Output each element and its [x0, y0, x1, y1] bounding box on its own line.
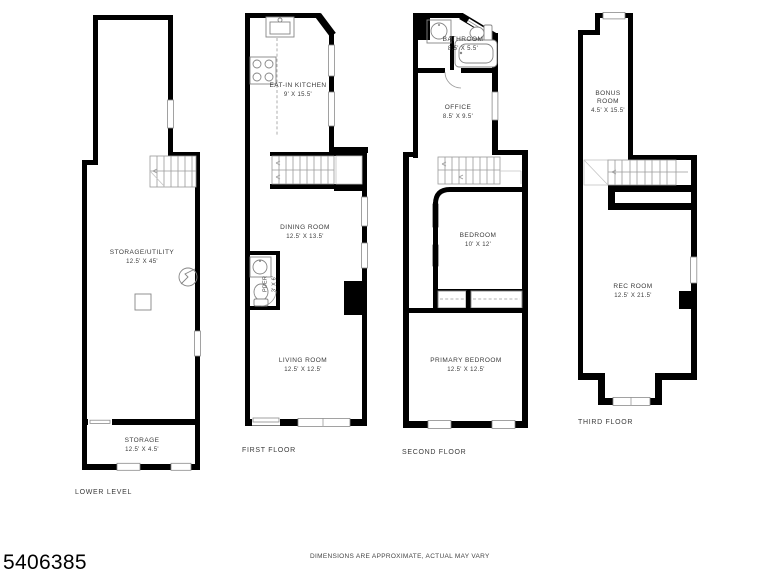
kitchen-sink-icon: [266, 17, 294, 37]
room-label-dining-room: DINING ROOM 12.5' X 13.5': [280, 224, 330, 241]
floor-label-first-floor: FIRST FLOOR: [242, 447, 296, 454]
door-threshold: [88, 418, 112, 426]
stove-icon: [250, 57, 276, 84]
post-icon: [135, 294, 151, 310]
plan-lower-level: [82, 15, 200, 470]
room-label-powder-room: PDER 3' X 6': [262, 276, 277, 292]
window-marker: [428, 92, 515, 428]
floor-label-lower-level: LOWER LEVEL: [75, 489, 132, 496]
fireplace-block: [679, 291, 697, 309]
room-label-bonus-room: BONUS ROOM 4.5' X 15.5': [586, 90, 630, 115]
meter-icon: [179, 268, 197, 286]
room-label-storage: STORAGE 12.5' X 4.5': [125, 437, 160, 454]
chimney-block: [418, 18, 430, 40]
room-label-storage-utility: STORAGE/UTILITY 12.5' X 45': [110, 249, 174, 266]
listing-id: 5406385: [3, 551, 87, 575]
bedroom-wall: [436, 190, 528, 205]
door-swing: [445, 72, 461, 88]
sink-icon: [250, 257, 271, 277]
floor-plan-image: STORAGE/UTILITY 12.5' X 45' STORAGE 12.5…: [0, 0, 768, 576]
room-label-rec-room: REC ROOM 12.5' X 21.5': [613, 283, 652, 300]
room-label-living-room: LIVING ROOM 12.5' X 12.5': [279, 357, 327, 374]
stairs-icon: [272, 156, 362, 184]
floor-label-third-floor: THIRD FLOOR: [578, 419, 633, 426]
fireplace-block: [344, 281, 367, 315]
floor-label-second-floor: SECOND FLOOR: [402, 449, 466, 456]
room-label-primary-bedroom: PRIMARY BEDROOM 12.5' X 12.5': [430, 357, 502, 374]
door-threshold: [252, 417, 280, 426]
plan-third-floor: [578, 12, 697, 405]
room-label-bedroom: BEDROOM 10' X 12': [460, 232, 497, 249]
stairs-icon: [438, 157, 521, 184]
stairs-icon: [150, 156, 196, 187]
room-label-office: OFFICE 8.5' X 9.5': [443, 104, 473, 121]
room-label-bathroom: BATHROOM 8.5' X 5.5': [443, 36, 484, 53]
dimensions-disclaimer: DIMENSIONS ARE APPROXIMATE, ACTUAL MAY V…: [310, 553, 490, 560]
stairs-icon: [584, 160, 688, 185]
closet: [438, 289, 527, 308]
room-label-eat-in-kitchen: EAT-IN KITCHEN 9' X 15.5': [269, 82, 326, 99]
